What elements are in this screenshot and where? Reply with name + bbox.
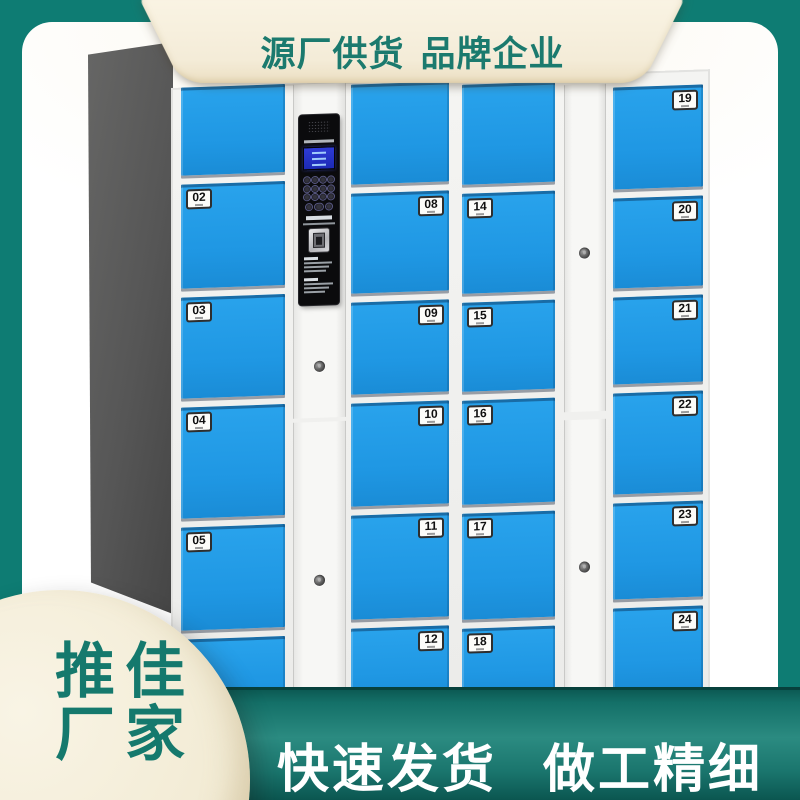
door-number-plate: 17 — [467, 518, 493, 539]
divider-column-panel-1 — [564, 84, 606, 412]
locker-door — [181, 84, 285, 176]
door-number-plate: 22 — [672, 396, 698, 417]
bottom-banner-title: 快速发货做工精细 — [250, 727, 790, 800]
locker-door-04: 04 — [181, 404, 285, 519]
locker-door-09: 09 — [351, 299, 449, 394]
door-number: 20 — [678, 204, 691, 215]
door-number: 22 — [678, 399, 691, 410]
instruction-text-line — [304, 270, 326, 272]
keypad-key — [304, 194, 310, 200]
keyhole-icon — [314, 361, 325, 372]
panel-caption-text — [304, 139, 334, 143]
keyhole-icon — [314, 575, 325, 586]
door-number-plate: 18 — [467, 633, 493, 654]
plate-tick — [681, 521, 689, 523]
keypad-bottom-row — [306, 203, 332, 210]
door-number-plate: 16 — [467, 405, 493, 426]
keypad-key — [312, 177, 318, 183]
plate-tick — [681, 411, 689, 413]
lcd-screen — [303, 146, 335, 170]
keypad-key — [312, 186, 318, 192]
door-number-plate: 03 — [186, 302, 212, 323]
locker-door — [462, 82, 555, 185]
keypad-key — [312, 194, 318, 200]
door-number-plate: 09 — [418, 304, 444, 325]
keypad-key — [328, 185, 334, 191]
keypad-key — [306, 204, 312, 210]
door-number-plate: 20 — [672, 201, 698, 222]
bottom-banner-phrase-2: 做工精细 — [543, 741, 763, 799]
locker-door-02: 02 — [181, 181, 285, 289]
keypad-key — [326, 203, 332, 209]
door-number: 17 — [473, 521, 486, 532]
locker-cabinet: 0203040508091011121415161718192021222324 — [171, 69, 710, 710]
keypad-key — [320, 177, 326, 183]
divider-column-panel-2 — [564, 419, 606, 696]
panel-subtitle-text — [303, 222, 335, 225]
door-number: 23 — [678, 509, 691, 520]
locker-door-11: 11 — [351, 512, 449, 619]
cabinet-side-panel — [88, 42, 173, 614]
locker-door-24: 24 — [613, 605, 703, 694]
top-banner-title: 源厂供货品牌企业 — [140, 26, 685, 77]
door-number-plate: 11 — [418, 517, 444, 538]
door-number-plate: 08 — [418, 195, 444, 216]
locker-door-22: 22 — [613, 390, 703, 494]
door-number-plate: 10 — [418, 405, 444, 426]
card-reader — [309, 228, 329, 252]
instruction-text-line — [304, 291, 325, 293]
door-number-plate: 21 — [672, 300, 698, 321]
instructions-heading-1 — [304, 257, 318, 260]
plate-tick — [427, 646, 435, 648]
door-number-plate: 24 — [672, 611, 698, 632]
keypad-key — [320, 185, 326, 191]
instruction-text-line — [304, 286, 329, 288]
badge-line-2: 厂家 — [30, 703, 220, 766]
keypad-key — [328, 176, 334, 182]
maker-badge-text: 推佳 厂家 — [20, 640, 220, 766]
keypad-key — [304, 177, 310, 183]
card-reader-hole — [316, 237, 322, 245]
locker-door-15: 15 — [462, 300, 555, 392]
door-number: 02 — [192, 192, 205, 203]
plate-tick — [427, 211, 435, 213]
locker-door — [351, 81, 449, 184]
plate-tick — [476, 213, 484, 215]
keypad-key — [328, 194, 334, 200]
plate-tick — [427, 533, 435, 535]
instruction-text-line — [304, 282, 333, 285]
door-number: 19 — [678, 93, 691, 104]
plate-tick — [476, 322, 484, 324]
plate-tick — [476, 648, 484, 650]
bottom-banner-phrase-1: 快速发货 — [277, 741, 497, 799]
keyhole-icon — [579, 247, 590, 258]
top-banner-phrase-2: 品牌企业 — [421, 35, 565, 74]
door-number-plate: 02 — [186, 189, 212, 210]
top-banner-phrase-1: 源厂供货 — [260, 35, 404, 74]
locker-door-10: 10 — [351, 400, 449, 506]
instructions-heading-2 — [304, 278, 318, 281]
plate-tick — [681, 216, 689, 218]
door-number: 14 — [473, 201, 486, 212]
plate-tick — [195, 427, 203, 429]
door-number: 11 — [425, 521, 438, 532]
locker-door-19: 19 — [613, 84, 703, 189]
door-number: 24 — [678, 614, 691, 625]
door-number-plate: 05 — [186, 532, 212, 553]
locker-door-20: 20 — [613, 195, 703, 288]
door-number: 15 — [473, 310, 486, 321]
keypad-key — [315, 204, 323, 210]
keypad — [304, 176, 334, 201]
door-number: 03 — [192, 305, 205, 316]
plate-tick — [195, 317, 203, 319]
locker-door-16: 16 — [462, 398, 555, 505]
lcd-text-line — [312, 158, 326, 160]
door-number-plate: 14 — [467, 198, 493, 219]
plate-tick — [476, 533, 484, 535]
product-image: 0203040508091011121415161718192021222324… — [0, 0, 800, 800]
door-number-plate: 23 — [672, 506, 698, 527]
plate-tick — [681, 626, 689, 628]
badge-line-1: 推佳 — [30, 640, 220, 703]
plate-tick — [427, 421, 435, 423]
locker-door-17: 17 — [462, 511, 555, 620]
locker-door-21: 21 — [613, 294, 703, 384]
plate-tick — [476, 420, 484, 422]
lcd-text-line — [312, 152, 326, 154]
plate-tick — [427, 320, 435, 322]
door-number: 09 — [424, 308, 437, 319]
locker-door-03: 03 — [181, 294, 285, 399]
keypad-key — [304, 186, 310, 192]
plate-tick — [681, 105, 689, 107]
door-number-plate: 04 — [186, 412, 212, 433]
door-number-plate: 19 — [672, 90, 698, 111]
door-number: 05 — [192, 535, 205, 546]
plate-tick — [681, 315, 689, 317]
control-panel — [299, 114, 339, 305]
locker-door-14: 14 — [462, 191, 555, 294]
door-number-plate: 15 — [467, 307, 493, 328]
door-number: 18 — [473, 636, 486, 647]
door-number: 04 — [192, 415, 205, 426]
instruction-text-line — [304, 261, 332, 263]
door-number: 16 — [473, 408, 486, 419]
door-number: 10 — [424, 409, 437, 420]
panel-title-text — [306, 215, 332, 220]
door-number: 08 — [424, 199, 437, 210]
door-number: 12 — [424, 634, 437, 645]
plate-tick — [195, 204, 203, 206]
keyhole-icon — [579, 561, 590, 572]
lcd-text-line — [312, 164, 326, 166]
speaker-grill-icon — [308, 120, 330, 132]
plate-tick — [195, 547, 203, 549]
locker-door-08: 08 — [351, 190, 449, 293]
door-number: 21 — [678, 303, 691, 314]
keypad-key — [320, 194, 326, 200]
control-column-panel-2 — [293, 421, 346, 706]
instruction-text-line — [304, 265, 329, 267]
locker-door-23: 23 — [613, 500, 703, 599]
locker-door-05: 05 — [181, 524, 285, 631]
door-number-plate: 12 — [418, 630, 444, 651]
